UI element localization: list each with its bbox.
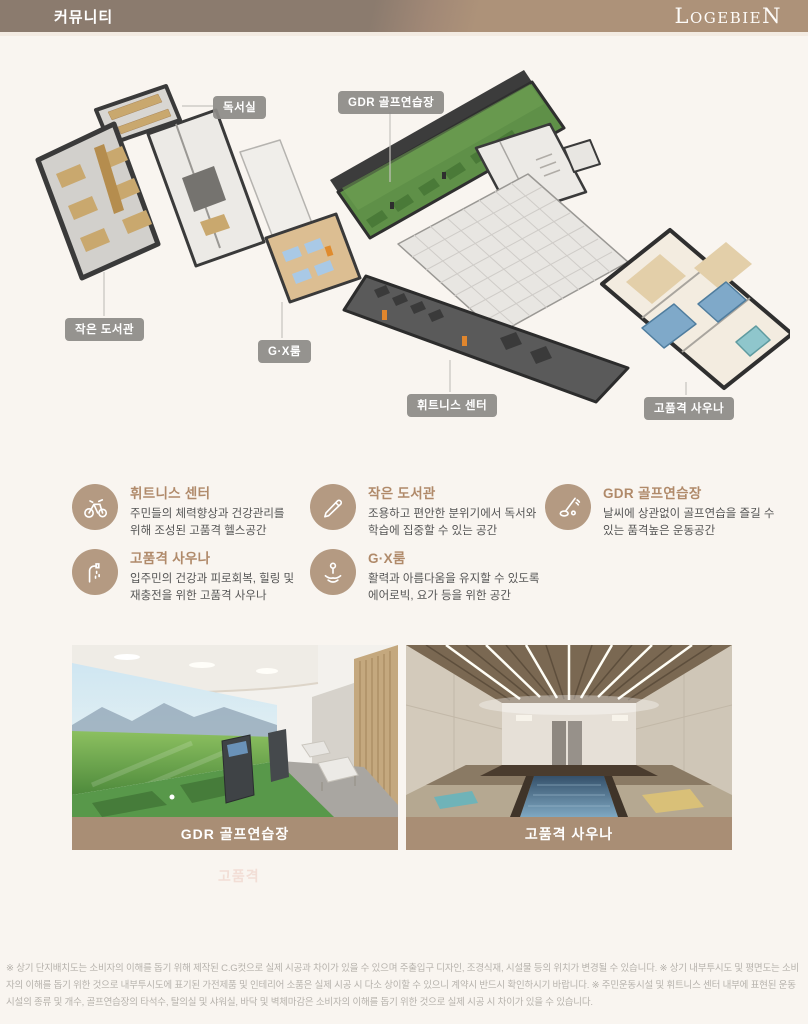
floorplan-section: 독서실 GDR 골프연습장 작은 도서관 G·X룸 휘트니스 센터 고품격 사우… — [30, 52, 790, 432]
feature-desc: 입주민의 건강과 피로회복, 힐링 및 재충전을 위한 고품격 사우나 — [130, 571, 308, 604]
feature-title: 작은 도서관 — [368, 482, 546, 502]
disclaimer-text: ※ 상기 단지배치도는 소비자의 이해를 돕기 위해 제작된 C.G컷으로 실제… — [6, 960, 802, 1011]
feature-desc: 조용하고 편안한 분위기에서 독서와 학습에 집중할 수 있는 공간 — [368, 506, 546, 539]
feature-title: 고품격 사우나 — [130, 547, 308, 567]
page-title: 커뮤니티 — [54, 6, 113, 27]
photo-caption: 고품격 사우나 — [406, 817, 732, 850]
feature-title: G·X룸 — [368, 547, 546, 567]
plan-label-gdr-golf: GDR 골프연습장 — [338, 91, 444, 114]
community-page: 커뮤니티 LogebieN — [0, 0, 808, 1024]
yoga-icon — [310, 549, 356, 595]
photo-gallery: GDR 골프연습장 — [72, 645, 732, 850]
exercise-bike-icon — [72, 484, 118, 530]
feature-desc: 날씨에 상관없이 골프연습을 즐길 수 있는 품격높은 운동공간 — [603, 506, 781, 539]
feature-sauna: 고품격 사우나 입주민의 건강과 피로회복, 힐링 및 재충전을 위한 고품격 … — [72, 547, 310, 612]
feature-library: 작은 도서관 조용하고 편안한 분위기에서 독서와 학습에 집중할 수 있는 공… — [310, 482, 545, 547]
sauna-photo — [406, 645, 732, 817]
plan-label-sauna: 고품격 사우나 — [644, 397, 734, 420]
feature-golf: GDR 골프연습장 날씨에 상관없이 골프연습을 즐길 수 있는 품격높은 운동… — [545, 482, 740, 547]
feature-title: 휘트니스 센터 — [130, 482, 308, 502]
feature-gx-room: G·X룸 활력과 아름다움을 유지할 수 있도록 에어로빅, 요가 등을 위한 … — [310, 547, 545, 612]
photo-golf-range: GDR 골프연습장 — [72, 645, 398, 850]
feature-title: GDR 골프연습장 — [603, 482, 781, 502]
plan-label-gx-room: G·X룸 — [258, 340, 311, 363]
pencil-icon — [310, 484, 356, 530]
feature-desc: 활력과 아름다움을 유지할 수 있도록 에어로빅, 요가 등을 위한 공간 — [368, 571, 546, 604]
golf-icon — [545, 484, 591, 530]
plan-label-small-library: 작은 도서관 — [65, 318, 144, 341]
feature-fitness: 휘트니스 센터 주민들의 체력향상과 건강관리를 위해 조성된 고품격 헬스공간 — [72, 482, 310, 547]
plan-label-fitness: 휘트니스 센터 — [407, 394, 497, 417]
brand-logo: LogebieN — [675, 4, 782, 28]
photo-sauna: 고품격 사우나 — [406, 645, 732, 850]
features-section: 휘트니스 센터 주민들의 체력향상과 건강관리를 위해 조성된 고품격 헬스공간… — [72, 482, 740, 612]
feature-desc: 주민들의 체력향상과 건강관리를 위해 조성된 고품격 헬스공간 — [130, 506, 308, 539]
photo-caption: GDR 골프연습장 — [72, 817, 398, 850]
golf-range-photo — [72, 645, 398, 817]
plan-label-reading-room: 독서실 — [213, 96, 266, 119]
shower-icon — [72, 549, 118, 595]
watermark-text: 고품격 — [218, 866, 260, 886]
page-header: 커뮤니티 LogebieN — [0, 0, 808, 36]
